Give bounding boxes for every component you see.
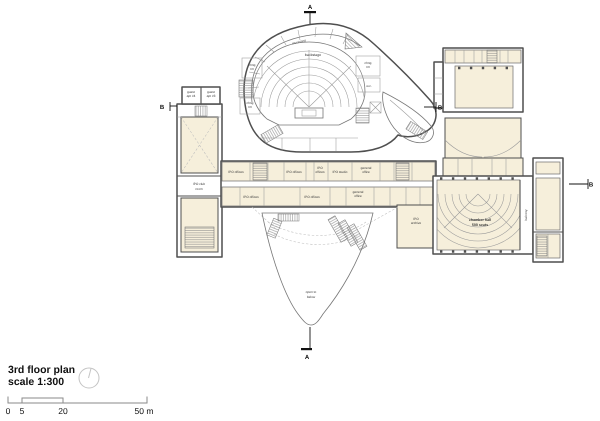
section-letter-a-bottom: A [305, 354, 310, 361]
left-wing: guest apt #4 guest apt #3 IPO club room [177, 87, 222, 257]
room-label-open-to-below-l2: below [307, 295, 316, 299]
scale-tick-0: 0 [6, 406, 11, 416]
room-label-guest-apt-4-l2: apt #4 [187, 94, 196, 98]
section-marker-b-left: B [160, 102, 177, 111]
room-label-wc: w.c. [366, 84, 372, 88]
section-bar [304, 11, 316, 13]
room-label-open-to-below: open to [306, 290, 317, 294]
room-label-ipo-offices-2line-l2: offices [315, 170, 325, 174]
room-label-ipo-offices: IPO offices [243, 195, 259, 199]
room-label-general-office-l2: office [354, 194, 362, 198]
room-label-ipo-studio: IPO studio [333, 170, 348, 174]
section-bar [301, 348, 312, 350]
stair [537, 236, 547, 256]
room-label-chamber-hall: chamber hall [469, 218, 491, 222]
side-rooms [434, 62, 443, 108]
scale-tick-20: 20 [58, 406, 68, 416]
drawing-title: 3rd floor plan [8, 364, 75, 376]
stair [487, 50, 497, 63]
room-label-ipo-offices: IPO offices [286, 170, 302, 174]
atrium: open to below [252, 207, 398, 325]
room-label-backstage: backstage [305, 53, 321, 57]
scale-bar: 0 5 20 50 m [6, 397, 154, 417]
room-label-ipo-club-room: IPO club [193, 182, 205, 186]
section-letter-b-left: B [160, 104, 165, 111]
section-marker-a-bottom: A [301, 327, 312, 361]
room-label-guest-apt-3-l2: apt #3 [207, 94, 216, 98]
section-marker-b-right: B [569, 179, 594, 189]
scale-tick-50m: 50 m [135, 406, 154, 416]
room-label-chng-rm-l2: rm [250, 67, 254, 71]
room-label-chamber-hall-l2: 500 seats [472, 223, 488, 227]
archive-room [397, 205, 435, 248]
room-label-chng-rm-l2: rm [248, 105, 252, 109]
section-letter-b-right: B [589, 182, 594, 189]
section-letter-b-mid: B [438, 105, 443, 112]
stair [195, 106, 207, 116]
drawing-scale: scale 1:300 [8, 376, 64, 388]
floor-plan-drawing: A musicians backstage [0, 0, 600, 421]
mid-hall [445, 118, 521, 158]
top-room-strip [445, 50, 521, 63]
scale-tick-5: 5 [20, 406, 25, 416]
room-label-ipo-offices: IPO offices [228, 170, 244, 174]
room-label-ipo-offices: IPO offices [304, 195, 320, 199]
office-wing: IPO offices IPO offices IPO offices IPO … [221, 161, 436, 207]
right-complex: chamber hall 500 seats balcony [424, 48, 563, 262]
stair [396, 163, 409, 180]
right-wing-room [536, 162, 560, 174]
room-label-ipo-club-room-l2: room [195, 187, 203, 191]
right-wing-hall [536, 178, 560, 230]
stair [253, 163, 267, 180]
archive-block: IPO archive [397, 205, 435, 248]
stage-house [455, 66, 513, 108]
main-auditorium-building: musicians backstage chng rm chng [239, 23, 436, 152]
room-label-chng-rm-l2: rm [366, 65, 370, 69]
stair [356, 108, 369, 123]
room-label-ipo-archive-l2: archive [411, 221, 422, 225]
stair [239, 80, 253, 97]
stair [185, 227, 214, 248]
room-strip [443, 158, 523, 176]
escalator [278, 214, 299, 221]
legend: 3rd floor plan scale 1:300 0 5 20 50 m [6, 364, 154, 416]
room-label-balcony: balcony [524, 209, 528, 220]
north-arrow-icon [79, 368, 99, 388]
section-letter-a-top: A [308, 4, 313, 11]
floor-plan-page: A musicians backstage [0, 0, 600, 421]
room-label-general-office-l2: office [362, 170, 370, 174]
